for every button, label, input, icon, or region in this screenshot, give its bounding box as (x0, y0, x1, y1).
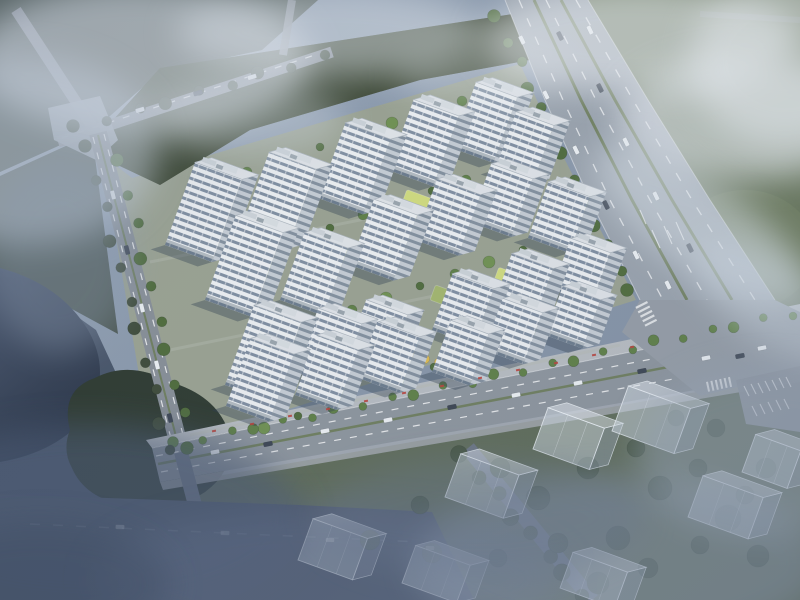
atmosphere-tint (0, 0, 800, 600)
aerial-render (0, 0, 800, 600)
